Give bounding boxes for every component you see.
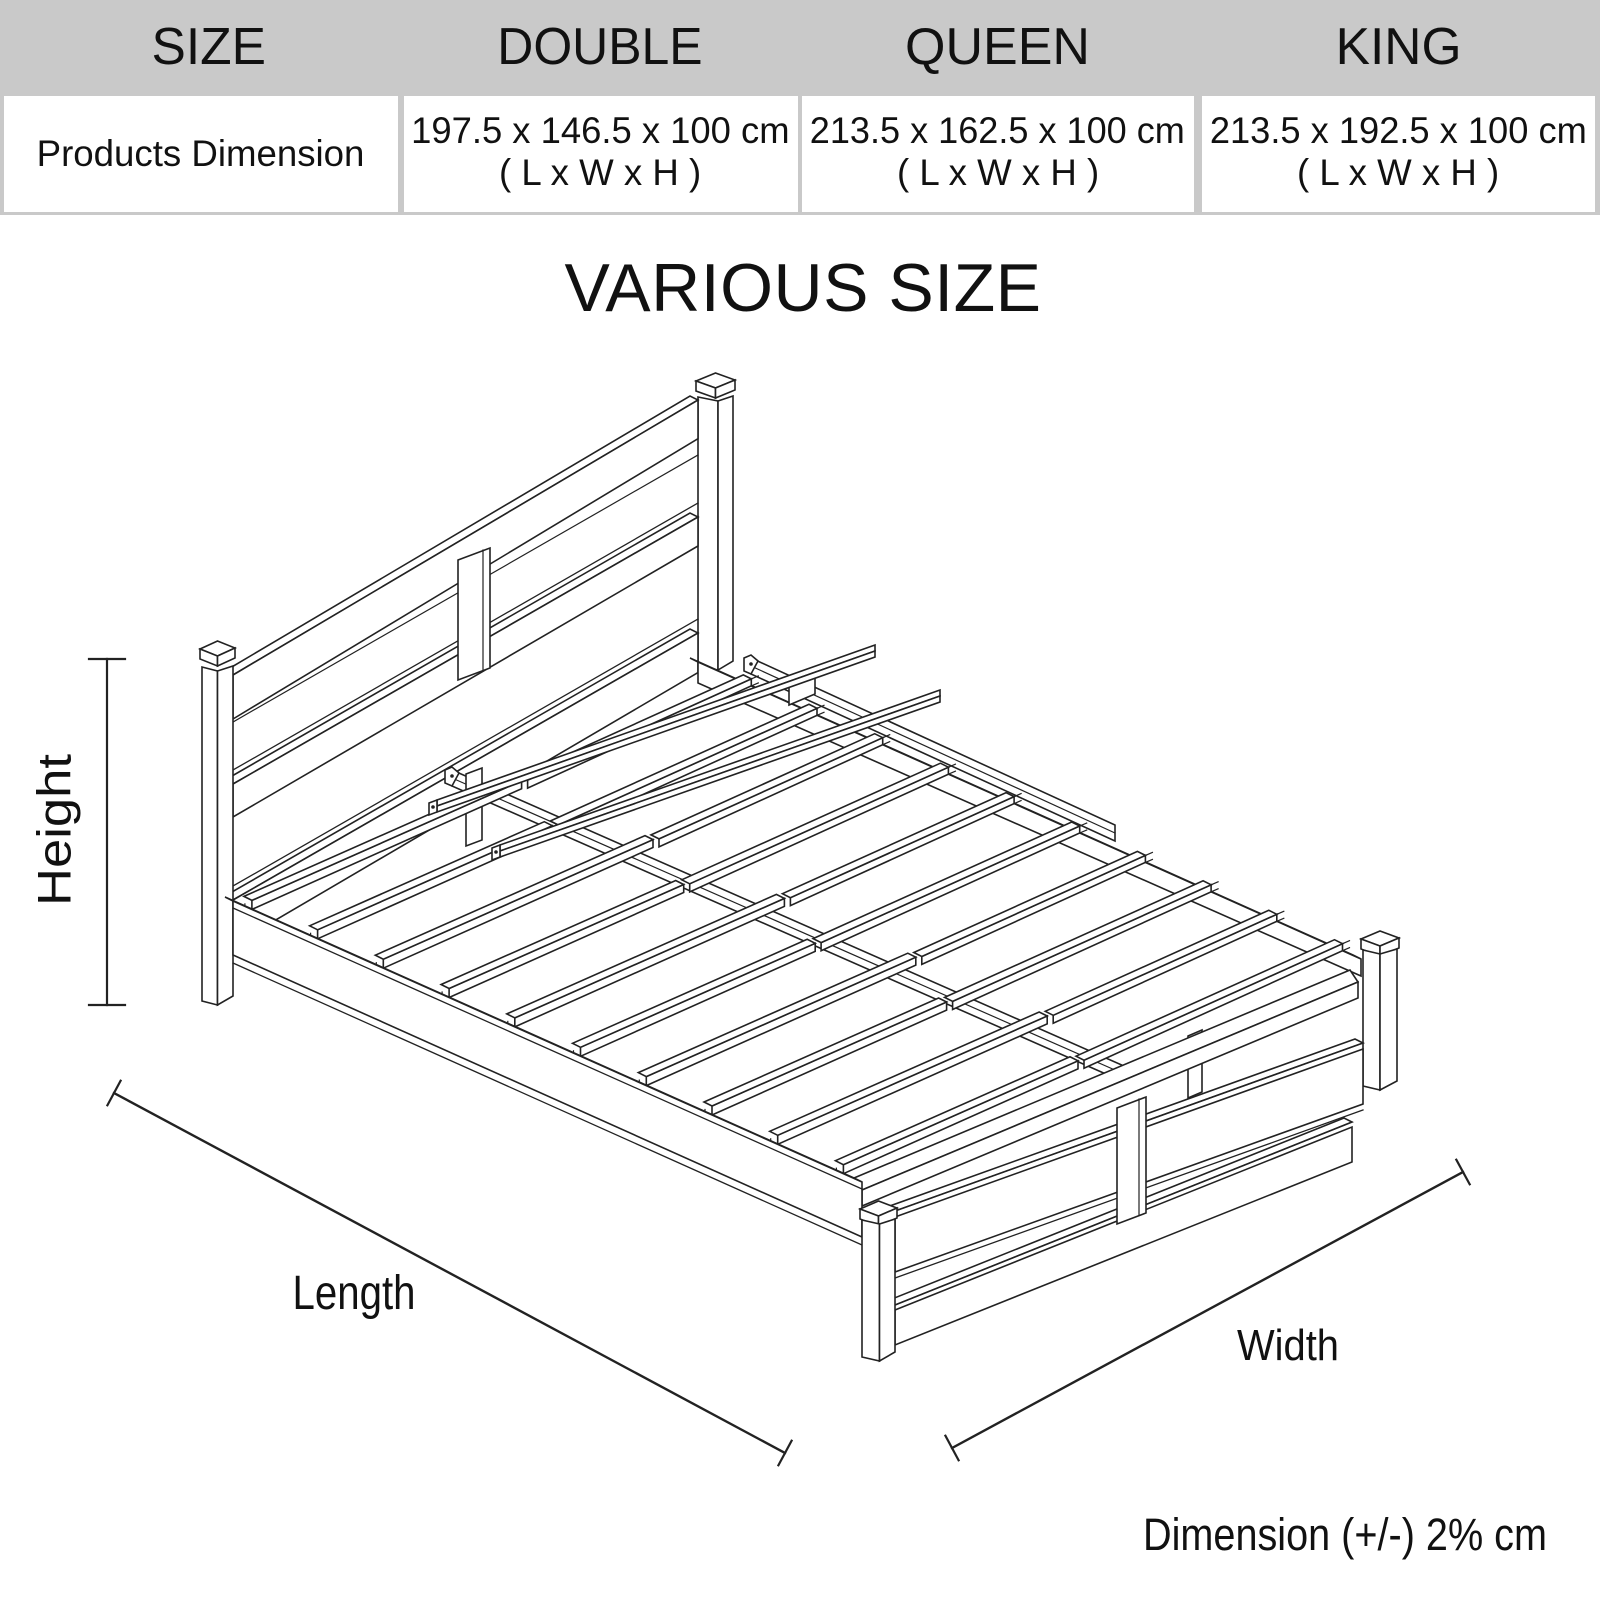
svg-text:Length: Length [293, 1267, 416, 1320]
svg-text:Dimension (+/-) 2% cm: Dimension (+/-) 2% cm [1143, 1509, 1547, 1560]
svg-text:Width: Width [1237, 1321, 1339, 1370]
svg-text:Height: Height [27, 754, 80, 906]
